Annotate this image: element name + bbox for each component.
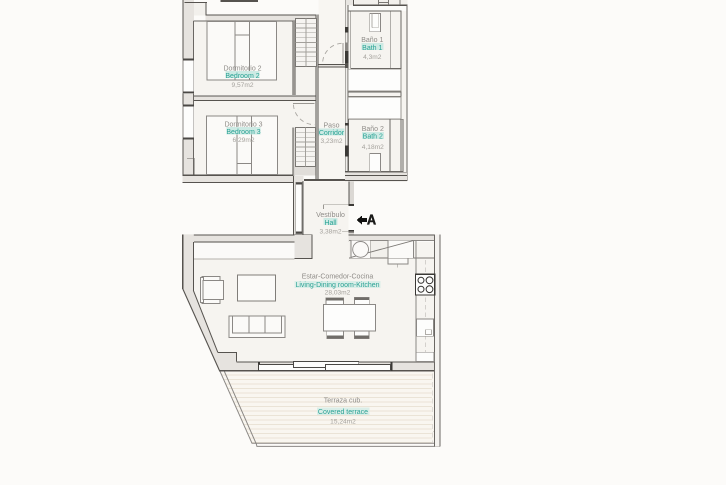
svg-text:6,29m2: 6,29m2 (233, 137, 255, 144)
svg-text:4,3m2: 4,3m2 (363, 54, 382, 61)
svg-text:Bedroom 3: Bedroom 3 (226, 129, 260, 136)
svg-text:Bath 2: Bath 2 (363, 134, 383, 141)
svg-text:Bedroom 2: Bedroom 2 (225, 73, 259, 80)
svg-text:3,23m2: 3,23m2 (321, 138, 343, 145)
svg-text:3,38m2: 3,38m2 (320, 228, 342, 235)
svg-text:15,24m2: 15,24m2 (330, 418, 356, 425)
svg-text:Living-Dining room-Kitchen: Living-Dining room-Kitchen (295, 282, 379, 289)
svg-text:Covered terrace: Covered terrace (318, 409, 368, 416)
svg-text:9,57m2: 9,57m2 (232, 82, 254, 89)
svg-text:Hall: Hall (324, 220, 337, 227)
svg-text:4,18m2: 4,18m2 (362, 144, 384, 151)
svg-text:Estar-Comedor-Cocina: Estar-Comedor-Cocina (302, 273, 374, 280)
svg-text:Corridor: Corridor (319, 130, 345, 137)
svg-text:Terraza cub.: Terraza cub. (324, 398, 363, 405)
svg-text:28,03m2: 28,03m2 (325, 290, 351, 297)
svg-text:Bath 1: Bath 1 (362, 45, 382, 52)
